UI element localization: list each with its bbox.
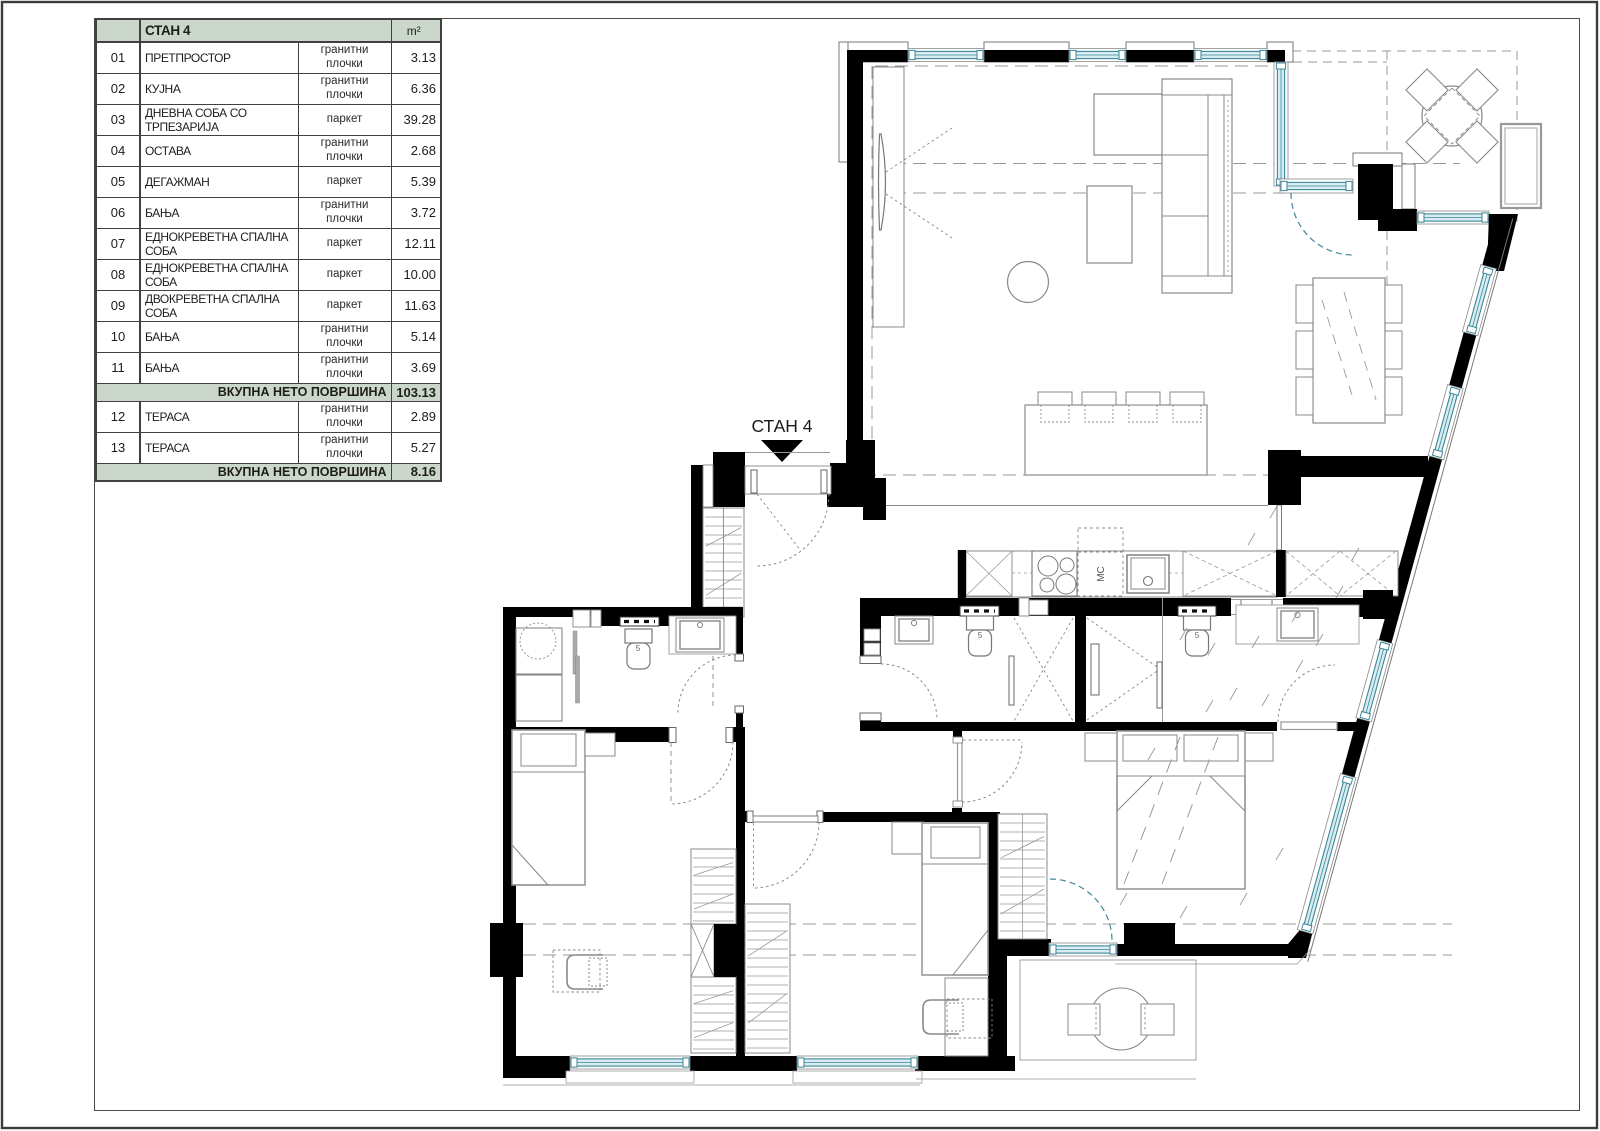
svg-text:5: 5 <box>978 631 983 640</box>
svg-text:МС: МС <box>1096 566 1107 582</box>
svg-text:5: 5 <box>1195 631 1200 640</box>
svg-text:СТАН 4: СТАН 4 <box>751 416 812 436</box>
svg-text:5: 5 <box>636 644 641 653</box>
